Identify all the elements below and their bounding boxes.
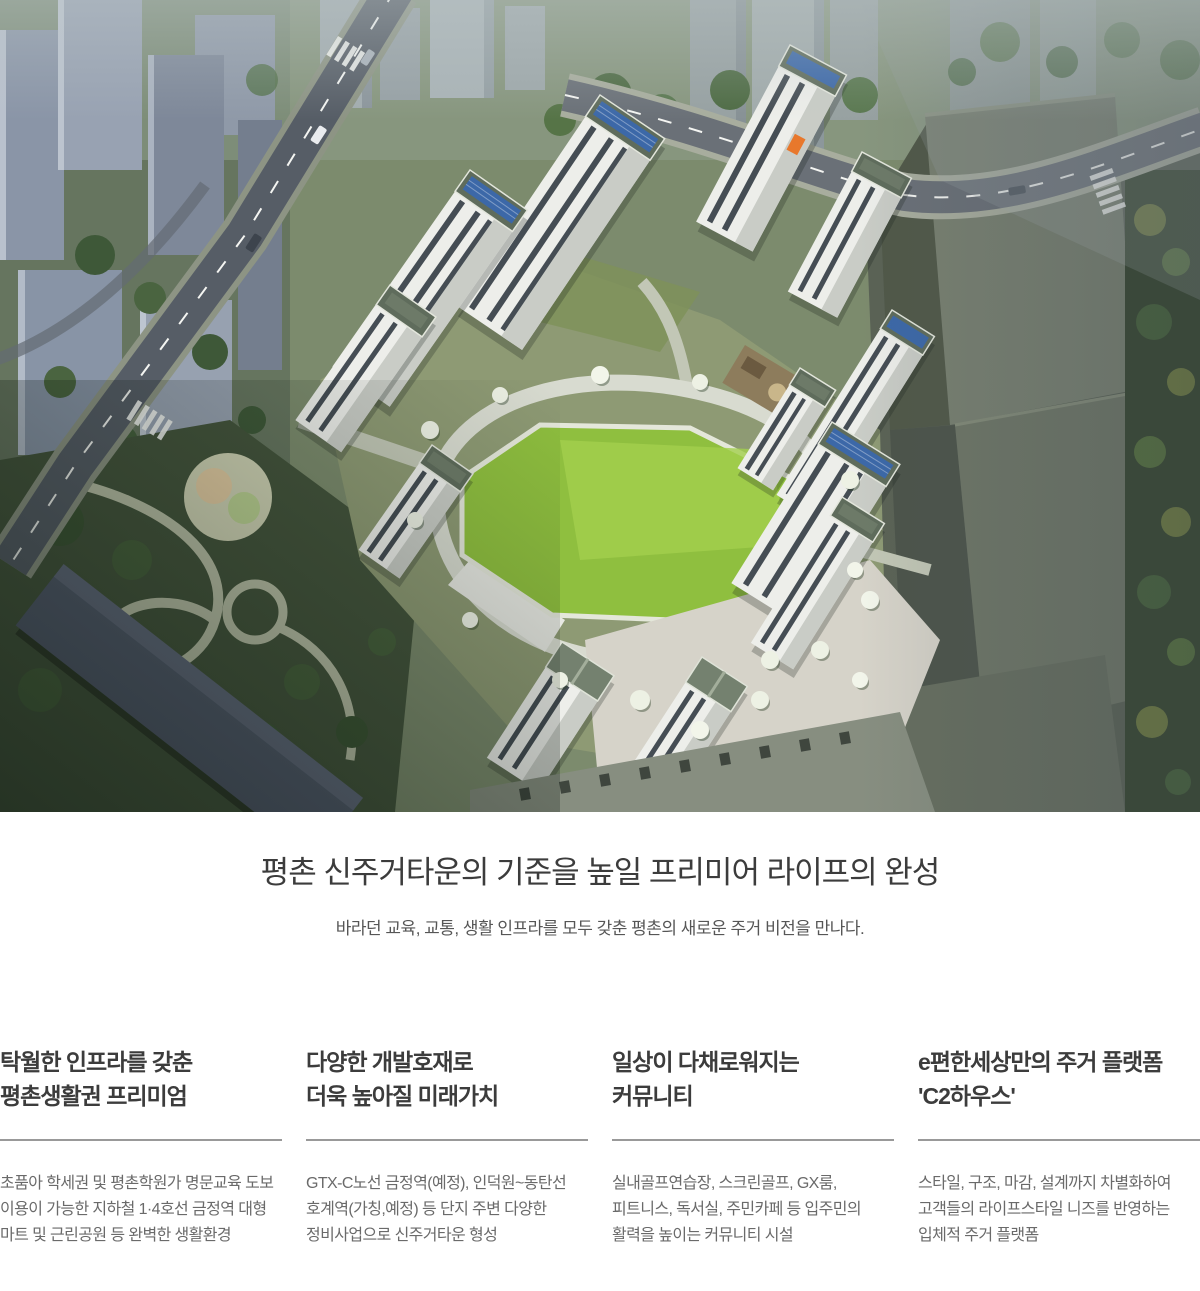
feature-title: 탁월한 인프라를 갖춘 평촌생활권 프리미엄 [0,1045,282,1113]
feature-divider [918,1139,1200,1141]
haze-overlay-top [0,0,1200,120]
feature-title-line2: 커뮤니티 [612,1083,693,1109]
page-subtitle: 바라던 교육, 교통, 생활 인프라를 모두 갖춘 평촌의 새로운 주거 비전을… [0,918,1200,940]
feature-columns: 탁월한 인프라를 갖춘 평촌생활권 프리미엄 초품아 학세권 및 평촌학원가 명… [0,1045,1200,1249]
feature-title-line2: 더욱 높아질 미래가치 [306,1083,498,1109]
feature-body: 실내골프연습장, 스크린골프, GX룸, 피트니스, 독서실, 주민카페 등 입… [612,1171,894,1249]
feature-title-line1: 탁월한 인프라를 갖춘 [0,1049,192,1075]
feature-divider [306,1139,588,1141]
feature-title-line2: 'C2하우스' [918,1083,1015,1109]
feature-body: 스타일, 구조, 마감, 설계까지 차별화하여 고객들의 라이프스타일 니즈를 … [918,1171,1200,1249]
feature-title-line2: 평촌생활권 프리미엄 [0,1083,187,1109]
feature-title-line1: e편한세상만의 주거 플랫폼 [918,1049,1162,1075]
feature-c2-house: e편한세상만의 주거 플랫폼 'C2하우스' 스타일, 구조, 마감, 설계까지… [918,1045,1200,1249]
aerial-view-illustration [0,0,1200,812]
feature-title: 일상이 다채로워지는 커뮤니티 [612,1045,894,1113]
feature-infrastructure: 탁월한 인프라를 갖춘 평촌생활권 프리미엄 초품아 학세권 및 평촌학원가 명… [0,1045,282,1249]
page: 평촌 신주거타운의 기준을 높일 프리미어 라이프의 완성 바라던 교육, 교통… [0,0,1200,1291]
feature-future-value: 다양한 개발호재로 더욱 높아질 미래가치 GTX-C노선 금정역(예정), 인… [306,1045,588,1249]
feature-divider [0,1139,282,1141]
hero-rendering [0,0,1200,812]
feature-title-line1: 다양한 개발호재로 [306,1049,473,1075]
feature-body: 초품아 학세권 및 평촌학원가 명문교육 도보 이용이 가능한 지하철 1·4호… [0,1171,282,1249]
bottom-padding [0,1249,1200,1289]
feature-community: 일상이 다채로워지는 커뮤니티 실내골프연습장, 스크린골프, GX룸, 피트니… [612,1045,894,1249]
feature-title: e편한세상만의 주거 플랫폼 'C2하우스' [918,1045,1200,1113]
feature-body: GTX-C노선 금정역(예정), 인덕원~동탄선 호계역(가칭,예정) 등 단지… [306,1171,588,1249]
intro-section: 평촌 신주거타운의 기준을 높일 프리미어 라이프의 완성 바라던 교육, 교통… [0,812,1200,940]
feature-divider [612,1139,894,1141]
feature-title: 다양한 개발호재로 더욱 높아질 미래가치 [306,1045,588,1113]
shadow-overlay-southwest [0,380,560,812]
feature-title-line1: 일상이 다채로워지는 [612,1049,799,1075]
page-title: 평촌 신주거타운의 기준을 높일 프리미어 라이프의 완성 [0,852,1200,894]
